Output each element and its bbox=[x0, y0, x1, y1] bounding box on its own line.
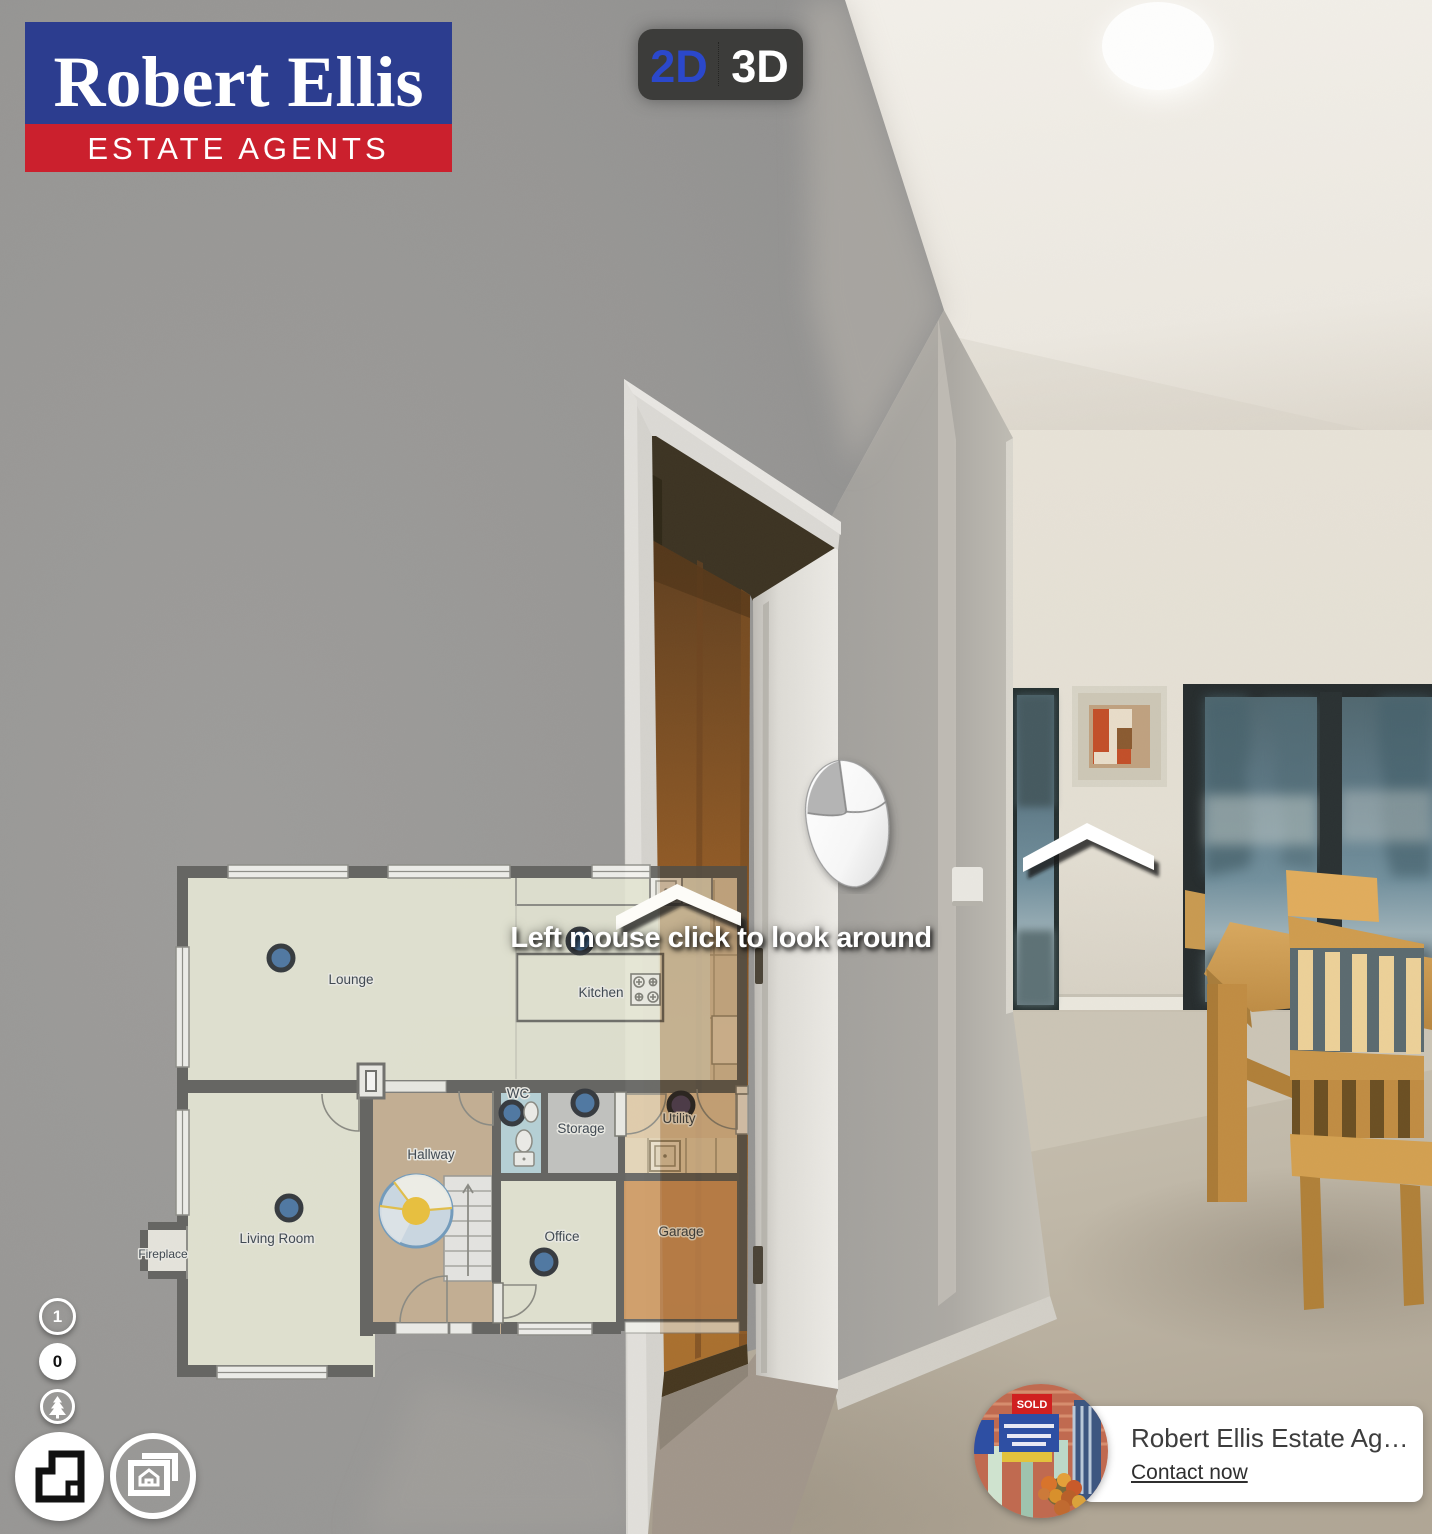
svg-text:Living Room: Living Room bbox=[239, 1231, 314, 1246]
svg-text:SOLD: SOLD bbox=[1017, 1399, 1048, 1411]
svg-text:Hallway: Hallway bbox=[407, 1147, 455, 1162]
svg-text:Fireplace: Fireplace bbox=[138, 1247, 188, 1261]
svg-text:Lounge: Lounge bbox=[328, 972, 373, 987]
svg-text:Kitchen: Kitchen bbox=[578, 985, 623, 1000]
svg-text:WC: WC bbox=[507, 1086, 530, 1101]
svg-text:Office: Office bbox=[544, 1229, 579, 1244]
svg-text:Storage: Storage bbox=[557, 1121, 604, 1136]
